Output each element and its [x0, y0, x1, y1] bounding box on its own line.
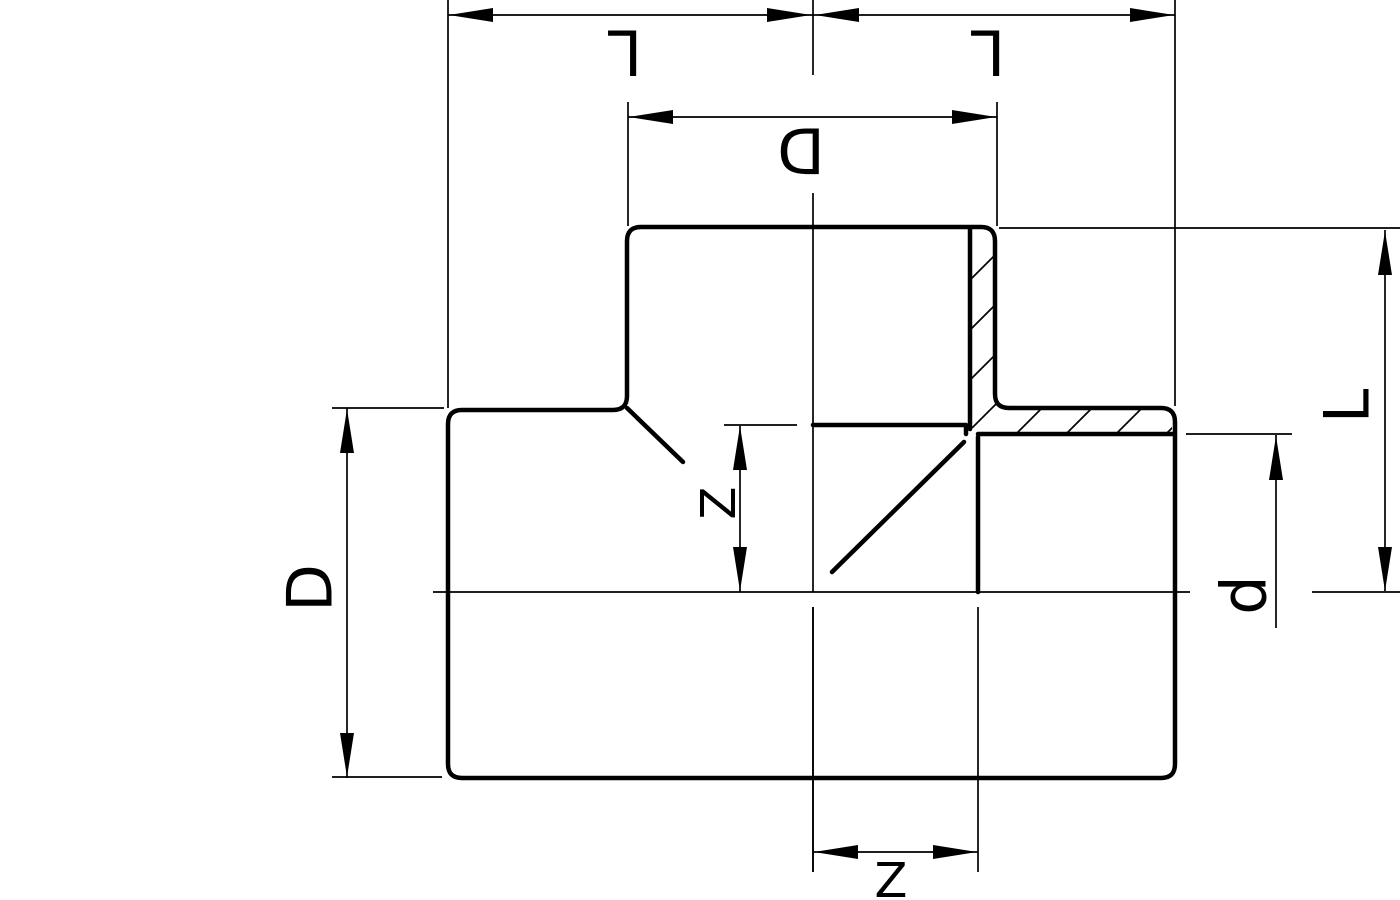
dim-label-bottom-socket-depth: Z — [875, 853, 908, 900]
technical-drawing-canvas: L L D D L d Z Z — [0, 0, 1400, 900]
drawing-background — [0, 0, 1400, 900]
dim-label-length-top-right: L — [970, 16, 1005, 89]
dim-label-branch-outer-diameter: D — [777, 114, 825, 187]
dim-label-socket-inner-diameter: d — [1208, 575, 1281, 614]
tee-fitting-drawing: L L D D L d Z Z — [0, 0, 1400, 900]
dim-label-length-top-left: L — [607, 16, 642, 89]
dim-label-mid-socket-depth: Z — [691, 487, 747, 520]
dim-label-right-length: L — [1311, 388, 1384, 423]
dim-label-body-outer-diameter: D — [274, 564, 347, 612]
